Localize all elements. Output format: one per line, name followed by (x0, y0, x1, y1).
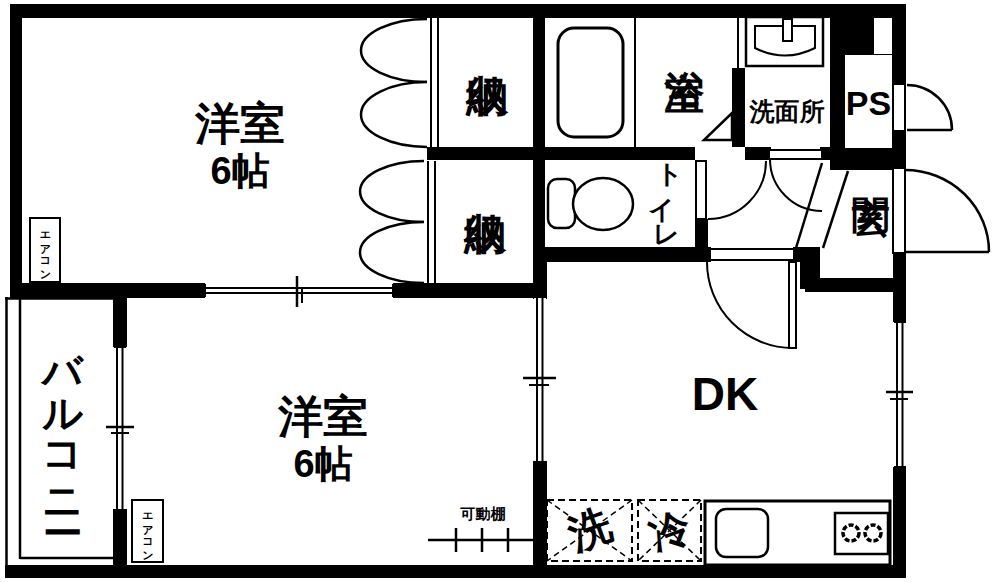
movable-shelf-label: 可動棚 (433, 505, 533, 522)
ps-label: PS (845, 84, 892, 123)
bedroom2-name: 洋室 (233, 391, 413, 443)
burner-left (843, 525, 859, 541)
aircon-box-bedroom1: エアコン (29, 217, 61, 283)
aircon-bedroom1-label: エアコン (38, 225, 53, 275)
closet-door-tracks (428, 18, 438, 283)
entrance-step-lines (796, 163, 848, 248)
toilet-label-char1: ト (656, 160, 683, 190)
window-balcony (106, 347, 134, 510)
entrance-door (893, 168, 989, 253)
bedroom2-label: 洋室 6帖 (233, 391, 413, 486)
kitchen-sink (716, 509, 768, 557)
floor-plan: 洋室 6帖 洋室 6帖 DK 浴室 収納 収納 洗面所 PS ト イ レ 玄関 … (0, 0, 1000, 582)
ps-door (893, 84, 952, 131)
bedroom2-size: 6帖 (233, 443, 413, 487)
fridge-space-label: 冷 (638, 500, 701, 561)
washer-char: 洗 (562, 501, 618, 561)
window-bedroom2-dk (523, 298, 556, 461)
burner-right (865, 525, 881, 541)
washbasin (746, 17, 823, 66)
balcony-label: バルコニー (42, 326, 84, 513)
movable-shelf (428, 528, 533, 552)
dk-door (707, 249, 796, 348)
aircon-bedroom2-label: エアコン (140, 506, 155, 556)
fridge-char: 冷 (643, 502, 696, 559)
closet-upper-label: 収納 (463, 41, 511, 43)
window-bedroom1-bedroom2 (205, 276, 393, 307)
closet-folding-doors (360, 19, 427, 283)
ps-notch (874, 18, 892, 54)
kitchen-counter (705, 501, 890, 565)
window-dk-right (886, 322, 913, 467)
toilet-door (696, 161, 766, 219)
washroom-door (769, 150, 822, 211)
bedroom1-size: 6帖 (150, 150, 330, 194)
bathtub (558, 28, 623, 137)
entrance-label: 玄関 (848, 166, 892, 168)
washer-space-label: 洗 (547, 500, 632, 561)
toilet-fixture (548, 178, 633, 230)
closet-lower-label: 収納 (461, 179, 509, 181)
dk-label: DK (650, 368, 800, 421)
bedroom1-name: 洋室 (150, 98, 330, 150)
bathroom-door-marker (704, 113, 732, 140)
bedroom1-label: 洋室 6帖 (150, 98, 330, 193)
toilet-label-char3: レ (653, 220, 680, 250)
bathroom-label: 浴室 (662, 38, 708, 40)
washroom-label: 洗面所 (743, 97, 831, 126)
aircon-box-bedroom2: エアコン (131, 499, 164, 563)
